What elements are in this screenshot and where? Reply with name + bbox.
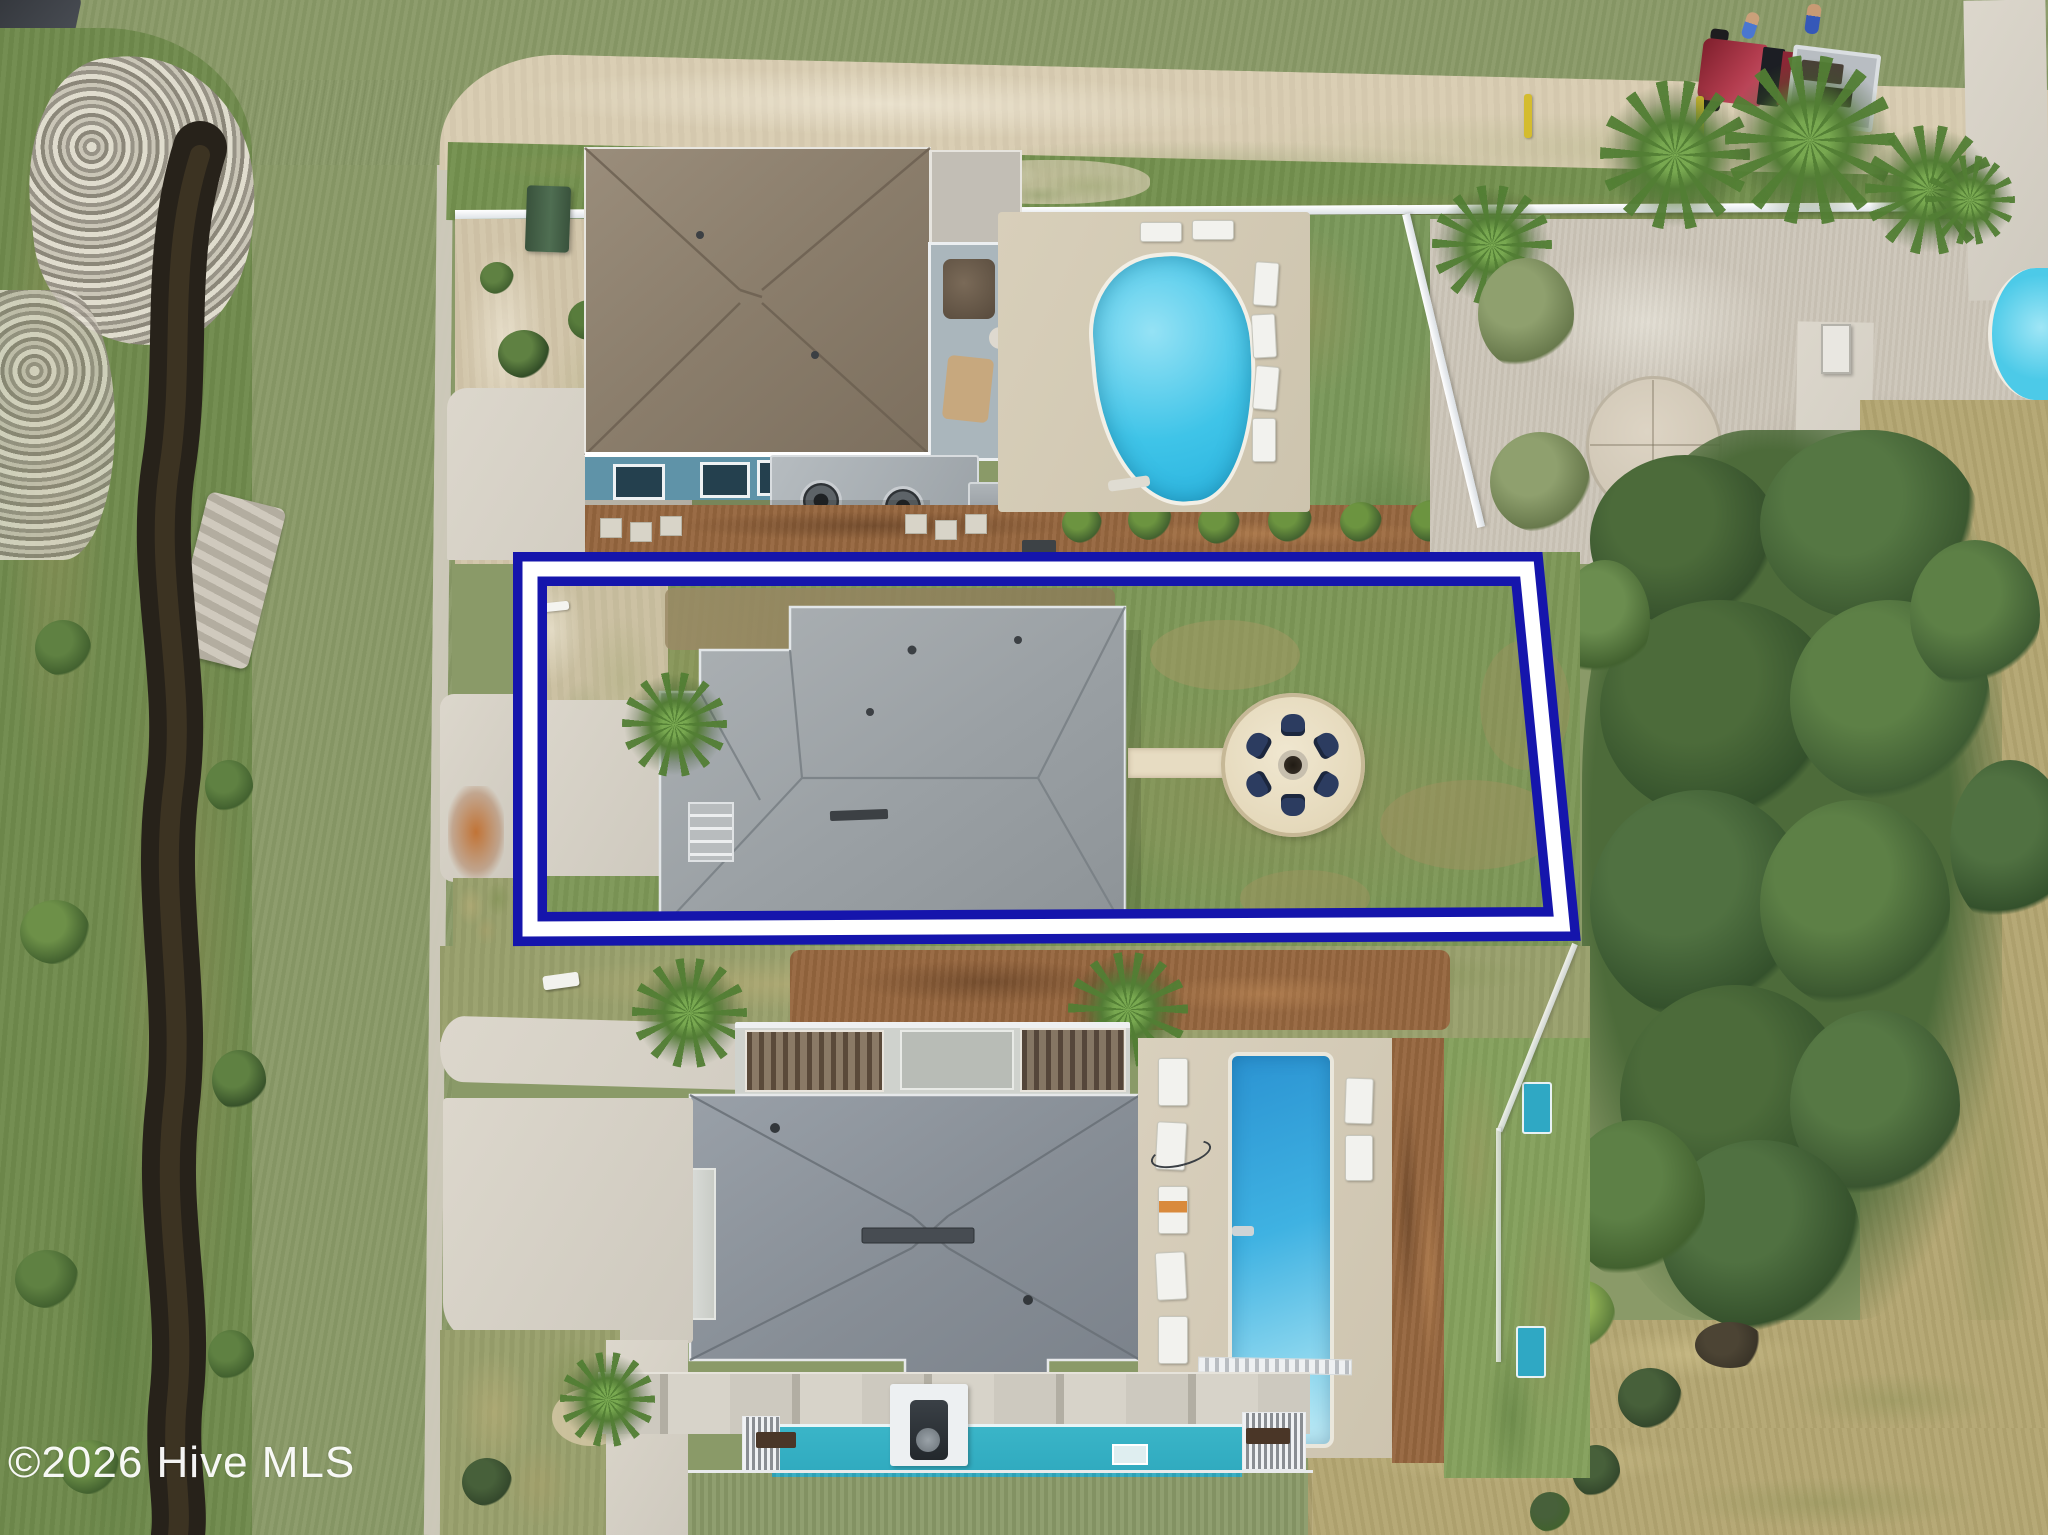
palm-tree (560, 1352, 655, 1447)
planter-box (756, 1432, 796, 1448)
lounge-chair (1252, 365, 1280, 411)
lot3-grass-right (1444, 1038, 1590, 1478)
shrub (1340, 502, 1382, 542)
lounge-chair (1345, 1135, 1373, 1181)
lot3-roofdeck-band (735, 1022, 1130, 1095)
lawn-brown-patch (1380, 780, 1560, 870)
rust-stain (448, 786, 504, 878)
lot3-right-fence (1496, 1128, 1501, 1362)
canal-bush (208, 1330, 254, 1380)
paver (630, 522, 652, 542)
dark-spot (1695, 1322, 1765, 1368)
pergola-grid (745, 1030, 884, 1092)
paver (965, 514, 987, 534)
subject-palm (622, 672, 727, 777)
deck-structure-white (890, 1384, 968, 1466)
firepit-path (1128, 748, 1233, 778)
aerial-photo-scene: ©2026 Hive MLS (0, 0, 2048, 1535)
gray-green-shrub (1490, 432, 1590, 532)
deck-furniture (943, 259, 995, 319)
lounge-chair (1344, 1078, 1374, 1125)
subject-house-shadow (1125, 630, 1141, 930)
lawn-brown-patch (1240, 870, 1370, 926)
firepit-chair (1281, 714, 1305, 736)
green-shed (525, 185, 571, 252)
firepit-chair (1242, 769, 1273, 801)
lounge-chair (1155, 1251, 1187, 1301)
lawn-brown-patch (1150, 620, 1300, 690)
mls-watermark: ©2026 Hive MLS (8, 1438, 355, 1488)
paver (660, 516, 682, 536)
house1-roof (580, 145, 940, 465)
tree (1760, 800, 1950, 1010)
yellow-bollard (1524, 94, 1532, 138)
pergola-grid (1020, 1028, 1126, 1092)
firepit-chair (1311, 769, 1342, 801)
paver (600, 518, 622, 538)
lawn-brown-patch (1480, 640, 1570, 770)
left-scrub-sliver (453, 878, 513, 948)
fire-pit-bowl (1284, 756, 1302, 774)
lot3-mulch-right (1392, 1038, 1444, 1463)
firepit-chair (1281, 794, 1305, 816)
canal-bush (212, 1050, 266, 1110)
utility-box (1821, 324, 1851, 374)
palm-tree (1925, 155, 2015, 245)
cornhole-board (1516, 1326, 1546, 1378)
gray-green-shrub (1478, 258, 1574, 370)
lounge-chair (1158, 1316, 1188, 1364)
subject-house-roof (650, 600, 1130, 940)
side-stairs (688, 802, 734, 862)
firepit-chair (1242, 729, 1273, 761)
lounge-chair (1158, 1058, 1188, 1106)
lounge-chair-orange-towel (1158, 1186, 1188, 1234)
deck-panel (900, 1030, 1014, 1090)
canal-bush (20, 900, 90, 964)
shrub (1618, 1368, 1682, 1428)
lot1-palm (498, 330, 550, 378)
lounge-chair (1252, 418, 1276, 462)
lot3-house-roof (685, 1092, 1145, 1402)
lounge-chair (1140, 222, 1182, 242)
cornhole-board (1522, 1082, 1552, 1134)
firepit-chair (1311, 729, 1342, 761)
lot3-driveway (443, 1098, 693, 1343)
canal-bush (15, 1250, 79, 1308)
palm-tree (632, 958, 747, 1068)
spa-round (916, 1428, 940, 1452)
shrub (1530, 1492, 1570, 1532)
canal-bush (35, 620, 91, 676)
deck-skylight (1112, 1444, 1148, 1465)
canal-bush (205, 760, 253, 812)
lounge-chair (1252, 261, 1279, 307)
lounge-chair (1251, 313, 1277, 358)
house1-window (700, 462, 750, 498)
meadow-bottom (1540, 1320, 2048, 1435)
lounge-chair (1192, 220, 1234, 240)
lot4-roof (688, 1470, 1313, 1535)
tree (1910, 540, 2040, 690)
shrub (462, 1458, 512, 1506)
pool-ladder (1232, 1226, 1254, 1236)
paver (935, 520, 957, 540)
lot1-plant (480, 262, 514, 294)
deck-lounge (942, 355, 994, 423)
firepit-patio (1221, 693, 1365, 837)
house1-window (613, 464, 665, 500)
planter-box (1246, 1428, 1290, 1444)
paver (905, 514, 927, 534)
